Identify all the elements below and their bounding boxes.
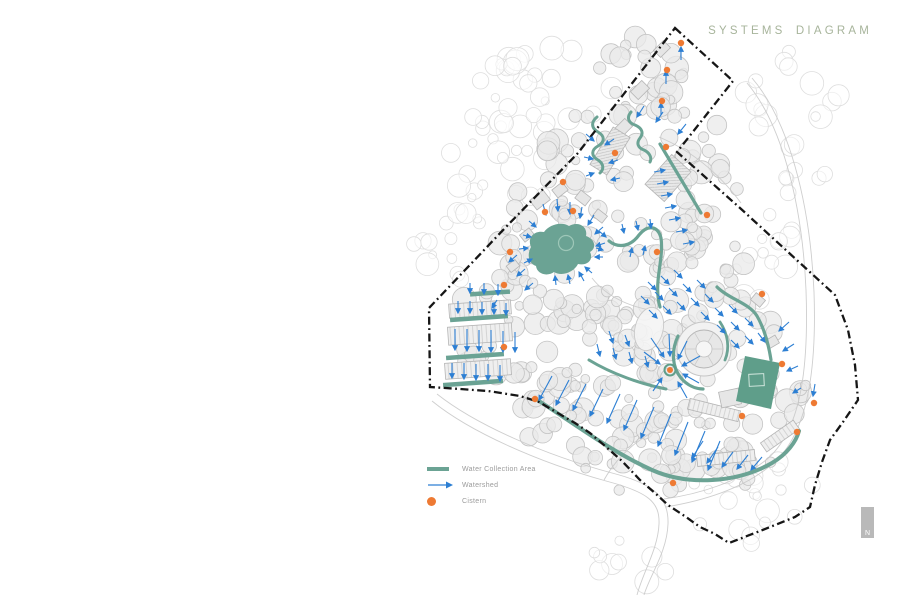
cistern-dot [663,144,669,150]
watershed-arrow [783,344,794,351]
legend-label-cistern: Cistern [462,498,486,505]
cistern-dot [704,212,710,218]
watershed-arrow [586,173,594,176]
legend-row-water-collection: Water Collection Area [427,461,536,477]
pond-island [559,236,574,251]
cistern-dot [811,400,817,406]
cistern-dot [501,344,507,350]
watershed-arrow [787,366,798,371]
cistern-dot [507,249,513,255]
page-title: SYSTEMS DIAGRAM [708,25,872,37]
watershed-arrow [579,272,584,281]
watershed-arrow [813,384,815,396]
cistern-dot [779,361,785,367]
cistern-dot [532,396,538,402]
legend-label-water-collection: Water Collection Area [462,466,536,473]
legend-label-watershed: Watershed [462,482,498,489]
legend: Water Collection Area Watershed Cistern [427,461,536,509]
watershed-arrow [678,124,686,134]
cistern-dot [794,429,800,435]
cistern-dot [570,208,576,214]
watershed-arrow [597,344,600,356]
cistern-dot [654,249,660,255]
cistern-dot [759,291,765,297]
legend-row-cistern: Cistern [427,493,536,509]
watershed-arrow [585,267,592,273]
north-indicator: N [861,507,874,538]
watershed-arrow [665,206,676,208]
cistern-dot [670,480,676,486]
watershed-arrow [588,215,594,225]
systems-diagram-sheet: N SYSTEMS DIAGRAM Water Collection Area … [0,0,900,595]
watershed-arrow-icon [427,480,454,490]
cistern-dot [560,179,566,185]
bioswale-bar [443,379,503,388]
cistern-dot [542,209,548,215]
cistern-dot [659,98,665,104]
watershed-arrow [584,157,593,159]
watershed-arrow [715,308,723,316]
cistern-dot [739,413,745,419]
cistern-dot [664,67,670,73]
north-label: N [865,530,870,537]
watershed-arrow [622,224,624,233]
cistern-dot [678,40,684,46]
legend-row-watershed: Watershed [427,477,536,493]
watershed-arrow [731,322,739,330]
cistern-dot [501,282,507,288]
cistern-dot-swatch [427,497,454,506]
watershed-arrow-swatch [427,480,454,490]
cistern-dot [612,150,618,156]
water-collection-swatch [427,467,454,472]
